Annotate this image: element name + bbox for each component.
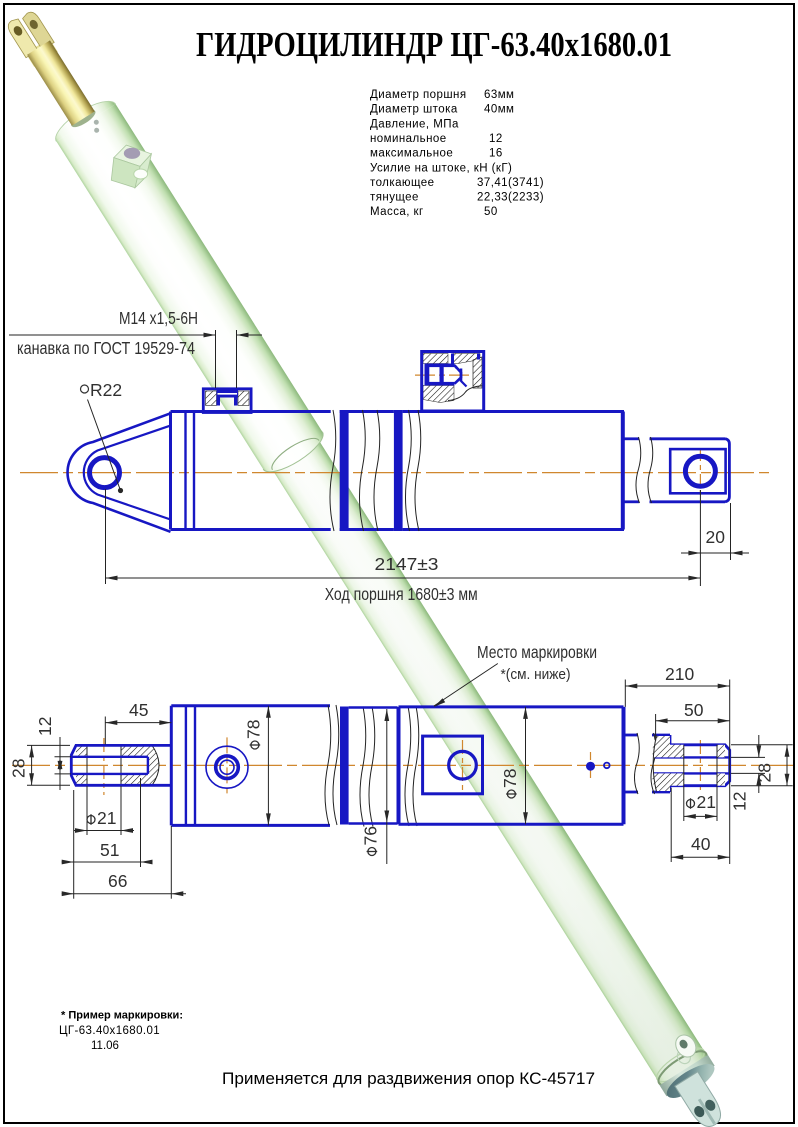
svg-text:канавка по ГОСТ 19529-74: канавка по ГОСТ 19529-74 xyxy=(17,338,195,358)
svg-text:Диаметр штока: Диаметр штока xyxy=(370,104,458,116)
svg-text:R22: R22 xyxy=(90,380,122,400)
svg-text:11.06: 11.06 xyxy=(91,1040,119,1052)
svg-text:2147±3: 2147±3 xyxy=(375,554,439,574)
svg-text:ЦГ-63.40х1680.01: ЦГ-63.40х1680.01 xyxy=(59,1025,160,1037)
svg-text:22,33(2233): 22,33(2233) xyxy=(477,192,544,204)
svg-text:Диаметр поршня: Диаметр поршня xyxy=(370,89,467,101)
svg-text:номинальное: номинальное xyxy=(370,133,447,145)
svg-text:63мм: 63мм xyxy=(484,89,514,101)
svg-text:78: 78 xyxy=(244,720,264,739)
svg-text:37,41(3741): 37,41(3741) xyxy=(477,177,544,189)
svg-text:21: 21 xyxy=(97,808,116,828)
svg-text:40: 40 xyxy=(691,834,711,854)
svg-text:210: 210 xyxy=(665,664,694,684)
svg-text:Масса, кг: Масса, кг xyxy=(370,206,424,218)
svg-text:Применяется для раздвижения оп: Применяется для раздвижения опор КС-4571… xyxy=(222,1069,595,1088)
svg-text:51: 51 xyxy=(100,840,119,860)
svg-text:12: 12 xyxy=(35,717,55,736)
svg-text:40мм: 40мм xyxy=(484,104,514,116)
svg-text:* Пример маркировки:: * Пример маркировки: xyxy=(61,1010,183,1022)
svg-text:28: 28 xyxy=(9,759,29,778)
svg-text:21: 21 xyxy=(697,792,716,812)
svg-text:толкающее: толкающее xyxy=(370,177,434,189)
svg-text:*(см. ниже): *(см. ниже) xyxy=(501,666,571,683)
svg-text:максимальное: максимальное xyxy=(370,148,453,160)
svg-text:50: 50 xyxy=(684,700,704,720)
svg-text:12: 12 xyxy=(730,792,750,811)
svg-text:78: 78 xyxy=(500,769,520,788)
svg-text:66: 66 xyxy=(108,871,127,891)
svg-text:20: 20 xyxy=(706,527,726,547)
svg-text:50: 50 xyxy=(484,206,498,218)
svg-text:12: 12 xyxy=(489,133,503,145)
svg-text:тянущее: тянущее xyxy=(370,192,419,204)
svg-text:16: 16 xyxy=(489,148,503,160)
svg-text:ГИДРОЦИЛИНДР ЦГ-63.40х1680.01: ГИДРОЦИЛИНДР ЦГ-63.40х1680.01 xyxy=(196,26,672,64)
svg-text:Ход поршня 1680±3 мм: Ход поршня 1680±3 мм xyxy=(325,584,478,604)
svg-text:Место маркировки: Место маркировки xyxy=(477,642,597,662)
svg-text:45: 45 xyxy=(129,700,148,720)
svg-text:28: 28 xyxy=(755,763,775,782)
svg-text:Усилие на штоке, кН (кГ): Усилие на штоке, кН (кГ) xyxy=(370,162,512,174)
svg-text:M14 х1,5-6Н: M14 х1,5-6Н xyxy=(119,308,198,328)
svg-text:Давление, МПа: Давление, МПа xyxy=(370,118,459,130)
svg-text:76: 76 xyxy=(361,826,381,845)
